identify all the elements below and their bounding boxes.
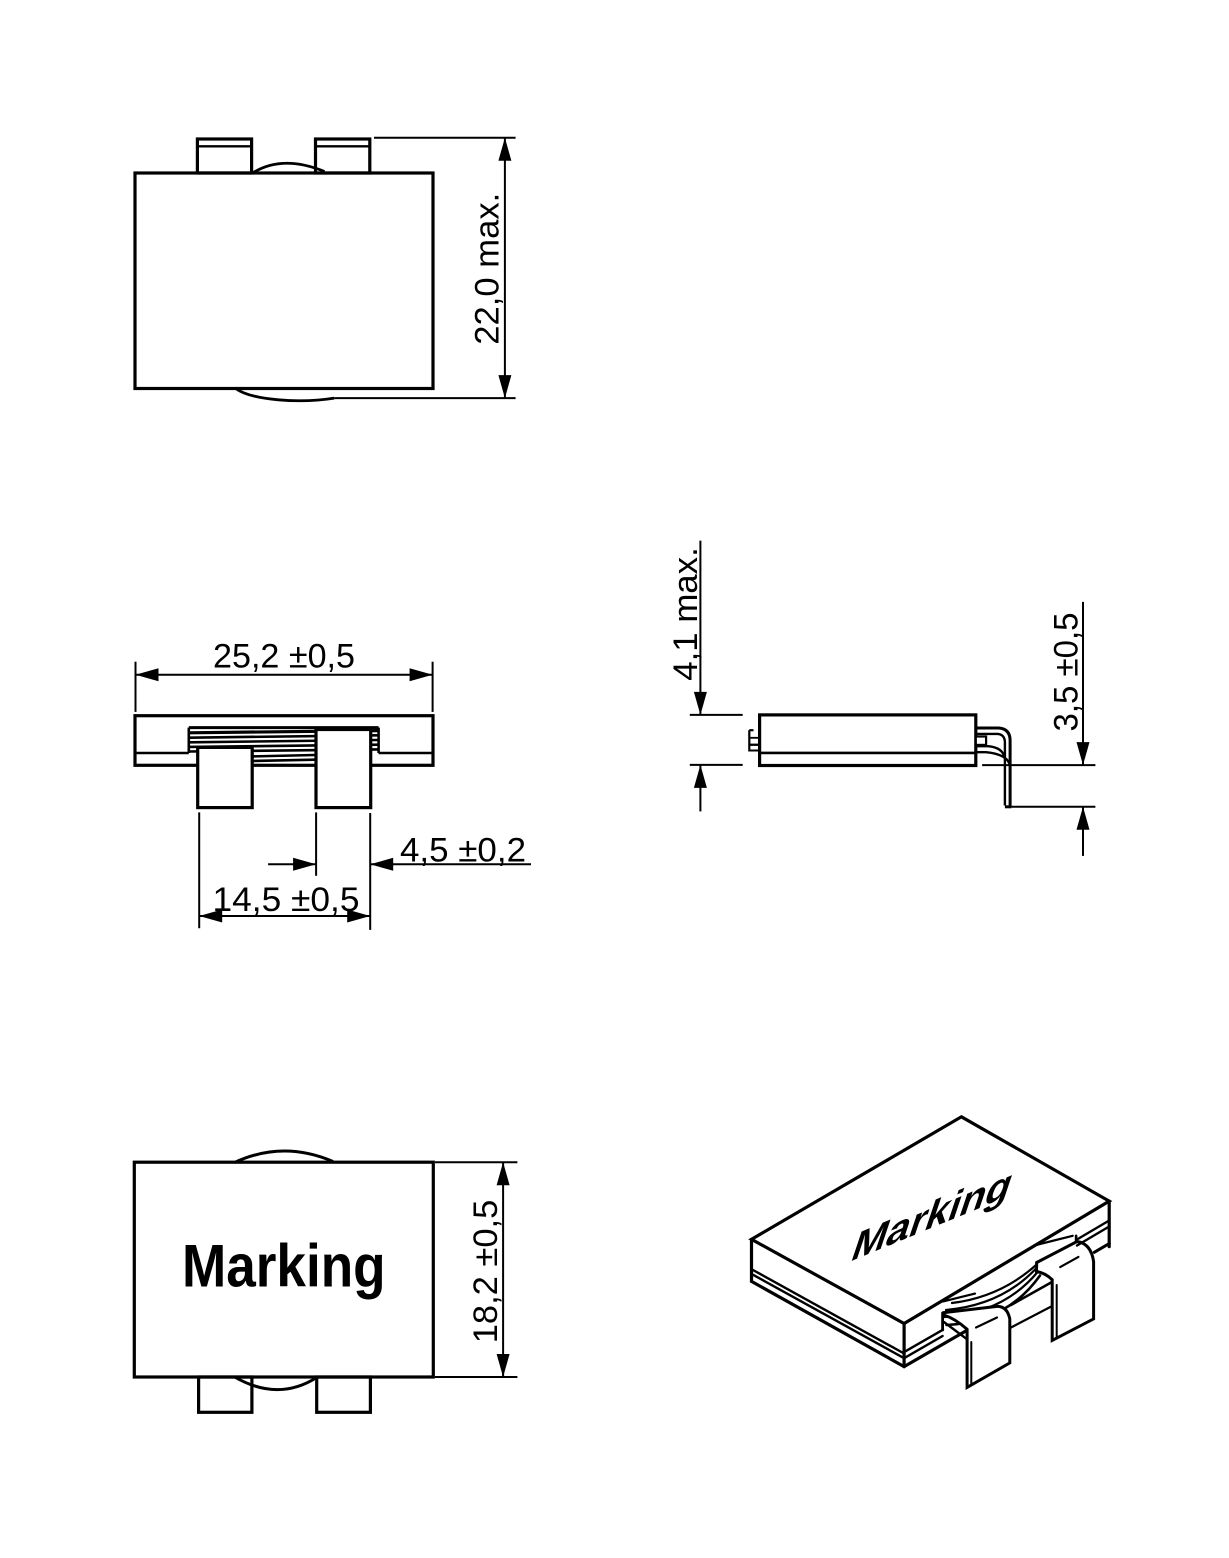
- svg-text:Marking: Marking: [182, 1233, 386, 1300]
- svg-text:18,2 ±0,5: 18,2 ±0,5: [467, 1200, 505, 1344]
- svg-text:3,5 ±0,5: 3,5 ±0,5: [1048, 613, 1086, 732]
- svg-text:14,5 ±0,5: 14,5 ±0,5: [213, 881, 360, 919]
- svg-text:22,0 max.: 22,0 max.: [469, 193, 507, 345]
- svg-text:4,5 ±0,2: 4,5 ±0,2: [400, 832, 526, 870]
- svg-text:25,2 ±0,5: 25,2 ±0,5: [213, 638, 355, 676]
- svg-text:4,1 max.: 4,1 max.: [667, 547, 705, 681]
